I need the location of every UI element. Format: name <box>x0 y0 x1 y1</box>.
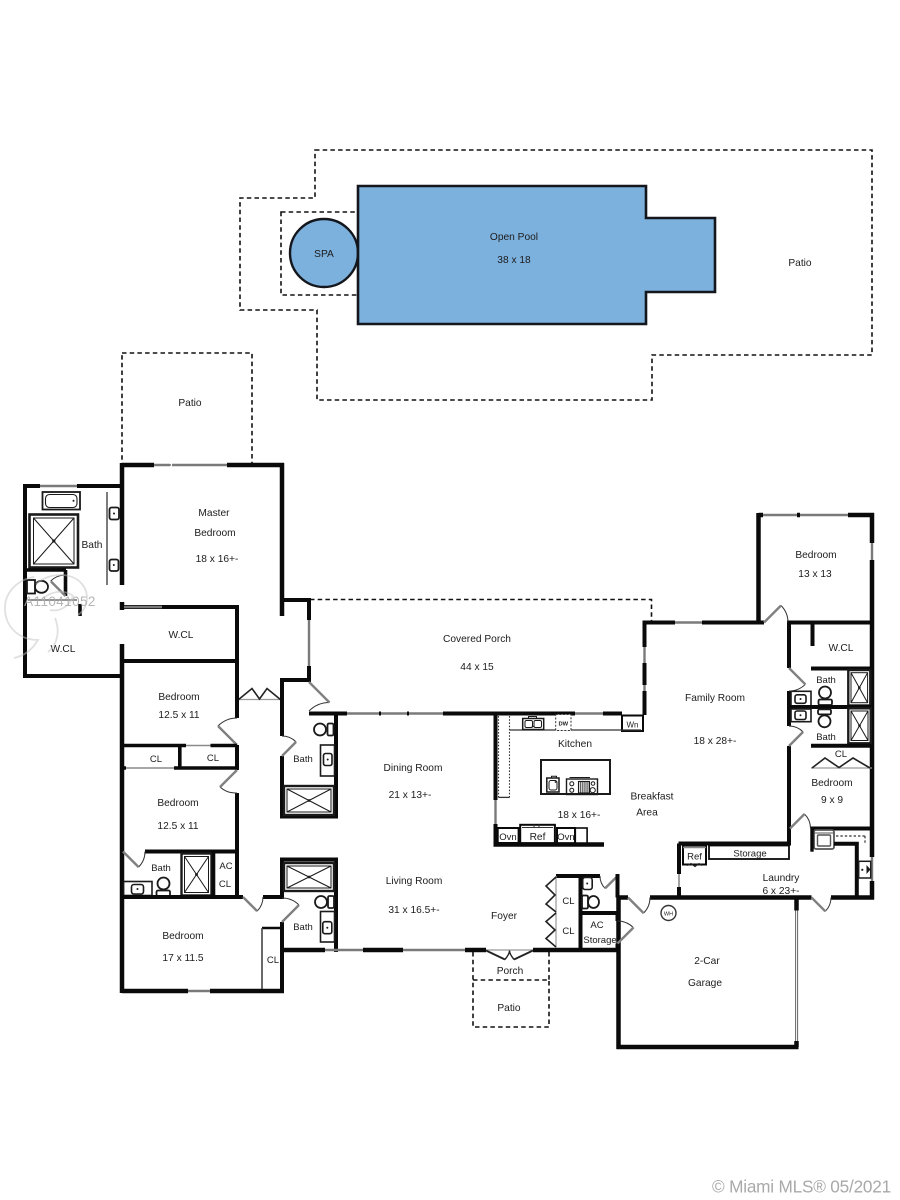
svg-text:Area: Area <box>636 808 658 819</box>
svg-text:Covered Porch: Covered Porch <box>443 634 511 645</box>
svg-text:Open Pool: Open Pool <box>490 232 538 243</box>
svg-text:Ovn: Ovn <box>557 832 574 843</box>
svg-text:12.5 x 11: 12.5 x 11 <box>157 821 198 832</box>
svg-text:Wn: Wn <box>627 721 639 730</box>
svg-text:Garage: Garage <box>688 978 722 989</box>
svg-text:9 x 9: 9 x 9 <box>821 795 843 806</box>
svg-text:Porch: Porch <box>497 966 524 977</box>
svg-text:Ref: Ref <box>687 852 702 863</box>
svg-text:Bedroom: Bedroom <box>157 798 198 809</box>
svg-text:CL: CL <box>835 749 847 760</box>
svg-text:Patio: Patio <box>788 258 812 269</box>
svg-text:Ref: Ref <box>530 832 546 843</box>
svg-text:SPA: SPA <box>314 249 334 260</box>
svg-text:CL: CL <box>562 926 574 937</box>
svg-text:Laundry: Laundry <box>763 873 801 884</box>
svg-text:18 x 16+-: 18 x 16+- <box>196 554 239 565</box>
svg-text:CL: CL <box>150 754 162 765</box>
svg-text:Bath: Bath <box>82 540 103 551</box>
svg-text:Bedroom: Bedroom <box>162 931 203 942</box>
svg-text:Bath: Bath <box>151 863 171 874</box>
svg-text:31 x 16.5+-: 31 x 16.5+- <box>388 905 439 916</box>
svg-text:2-Car: 2-Car <box>694 956 720 967</box>
svg-text:W.CL: W.CL <box>829 643 854 654</box>
svg-text:18 x 16+-: 18 x 16+- <box>558 810 601 821</box>
svg-text:Bath: Bath <box>816 732 836 743</box>
svg-text:Bedroom: Bedroom <box>194 528 235 539</box>
svg-text:21 x 13+-: 21 x 13+- <box>389 790 432 801</box>
svg-text:Bedroom: Bedroom <box>811 778 852 789</box>
svg-text:AC: AC <box>219 861 232 872</box>
svg-text:Family Room: Family Room <box>685 693 745 704</box>
svg-text:Bath: Bath <box>816 675 836 686</box>
svg-text:Ovn: Ovn <box>499 832 516 843</box>
svg-text:CL: CL <box>562 896 574 907</box>
svg-text:17 x 11.5: 17 x 11.5 <box>162 953 203 964</box>
svg-text:44 x 15: 44 x 15 <box>460 662 494 673</box>
svg-text:13 x 13: 13 x 13 <box>798 569 832 580</box>
svg-text:18 x 28+-: 18 x 28+- <box>694 736 737 747</box>
svg-text:AC: AC <box>590 920 603 931</box>
svg-text:Bedroom: Bedroom <box>795 550 836 561</box>
svg-text:Bath: Bath <box>293 922 313 933</box>
svg-text:A11041052: A11041052 <box>24 594 96 609</box>
svg-text:Bedroom: Bedroom <box>158 692 199 703</box>
svg-text:38 x 18: 38 x 18 <box>497 255 531 266</box>
svg-text:12.5 x 11: 12.5 x 11 <box>158 710 199 721</box>
svg-text:W.CL: W.CL <box>169 630 194 641</box>
svg-text:Kitchen: Kitchen <box>558 739 592 750</box>
svg-text:Living Room: Living Room <box>386 876 443 887</box>
svg-text:Foyer: Foyer <box>491 911 518 922</box>
svg-text:Master: Master <box>198 508 230 519</box>
svg-text:Patio: Patio <box>497 1003 521 1014</box>
svg-text:© Miami MLS® 05/2021: © Miami MLS® 05/2021 <box>712 1177 891 1197</box>
svg-text:Dining Room: Dining Room <box>384 763 443 774</box>
svg-text:CL: CL <box>219 879 231 890</box>
svg-text:CL: CL <box>207 753 219 764</box>
svg-text:Patio: Patio <box>178 398 202 409</box>
svg-text:DW: DW <box>558 722 568 728</box>
svg-text:CL: CL <box>267 955 279 966</box>
svg-text:Storage: Storage <box>733 849 766 860</box>
svg-text:Storage: Storage <box>583 935 616 946</box>
svg-text:Breakfast: Breakfast <box>630 792 673 803</box>
svg-text:WH: WH <box>664 912 673 918</box>
svg-text:Bath: Bath <box>293 754 313 765</box>
